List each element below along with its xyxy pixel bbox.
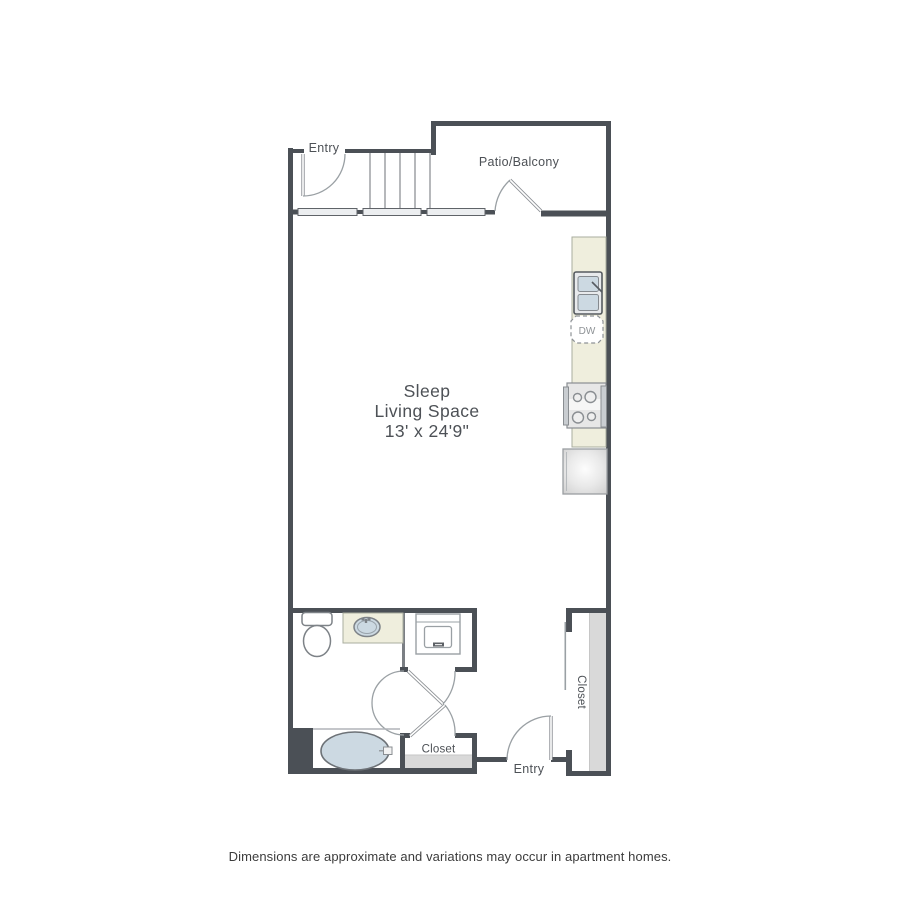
utility-door	[408, 671, 455, 704]
wall-segment	[288, 149, 304, 153]
closet-shelf-edge	[589, 613, 590, 771]
vanity-sink-icon	[343, 613, 403, 643]
toilet-icon	[302, 613, 332, 657]
label-patio-balcony: Patio/Balcony	[479, 155, 560, 169]
tub-faucet	[384, 747, 393, 755]
wall-segment	[566, 608, 572, 632]
patio-door	[495, 180, 541, 211]
washer-dryer-icon	[416, 614, 460, 654]
label-entry-bottom: Entry	[514, 762, 545, 776]
wall-segment	[288, 148, 293, 774]
wall-segment	[288, 210, 298, 215]
sink-basin	[578, 295, 599, 311]
floor-plan: DW	[0, 0, 900, 900]
door-swing-arc	[303, 154, 345, 196]
washer-vent-slot	[435, 644, 442, 645]
closet-right: Closet	[565, 613, 607, 771]
wall-segment	[472, 608, 477, 672]
bathtub	[321, 732, 389, 770]
window	[298, 209, 357, 216]
door-swing-arc	[443, 671, 455, 704]
kitchen: DW	[563, 237, 607, 494]
dishwasher-icon: DW	[571, 316, 603, 343]
label-entry-top: Entry	[309, 141, 340, 155]
shower-wall-block	[288, 728, 313, 772]
wall-segment	[431, 121, 611, 126]
staircase	[370, 153, 430, 208]
wall-segment	[485, 210, 495, 215]
toilet-tank	[302, 613, 332, 626]
window	[363, 209, 421, 216]
burner	[588, 413, 596, 421]
windows	[298, 209, 485, 216]
toilet-bowl	[304, 626, 331, 657]
door-leaf	[408, 671, 443, 704]
label-living-line1: Sleep	[404, 381, 451, 401]
burner	[573, 412, 584, 423]
wall-segment	[288, 768, 477, 774]
door-leaf	[510, 180, 541, 211]
window	[427, 209, 485, 216]
entry-door-bottom	[507, 716, 551, 760]
door-leaf	[410, 705, 445, 736]
stove-rail	[564, 387, 569, 425]
sink-basin	[578, 277, 599, 292]
wall-segment	[421, 210, 427, 214]
bathroom-door	[372, 671, 404, 735]
door-swing-arc	[372, 671, 404, 735]
entry-door-top	[303, 154, 345, 196]
stove-icon	[564, 383, 607, 428]
kitchen-sink-icon	[574, 272, 602, 314]
stove-rail	[601, 386, 607, 427]
bathtub-icon	[313, 729, 400, 770]
label-closet-right: Closet	[575, 675, 587, 709]
closet-right-shelf	[589, 613, 606, 771]
dishwasher-label: DW	[579, 326, 596, 337]
wall-segment	[345, 149, 436, 153]
floor-plan-page: DW	[0, 0, 900, 900]
closet-bottom-shelf	[405, 755, 472, 769]
wall-segment	[541, 211, 611, 217]
label-living-dimensions: 13' x 24'9"	[385, 421, 469, 441]
door-swing-arc	[507, 716, 551, 760]
disclaimer-text: Dimensions are approximate and variation…	[0, 849, 900, 864]
closet-door-line	[565, 622, 567, 690]
wall-segment	[472, 733, 477, 773]
door-swing-arc	[495, 180, 510, 211]
closet-door	[410, 705, 455, 736]
wall-segment	[477, 757, 507, 762]
burner	[585, 392, 596, 403]
faucet-knob	[362, 618, 365, 621]
wall-segment	[357, 210, 363, 214]
wall-segment	[455, 667, 477, 672]
closet-bottom: Closet	[405, 744, 472, 769]
wall-segment	[566, 608, 611, 613]
wall-segment	[566, 771, 611, 776]
label-closet-bottom: Closet	[422, 744, 456, 756]
faucet-knob	[368, 618, 371, 621]
refrigerator-icon	[563, 449, 607, 494]
refrigerator-body	[563, 449, 607, 494]
faucet-spout	[365, 619, 367, 623]
door-swing-arc	[445, 705, 455, 736]
burner	[574, 394, 582, 402]
label-living-line2: Living Space	[374, 401, 479, 421]
room-labels: Entry Patio/Balcony Sleep Living Space 1…	[309, 141, 560, 776]
